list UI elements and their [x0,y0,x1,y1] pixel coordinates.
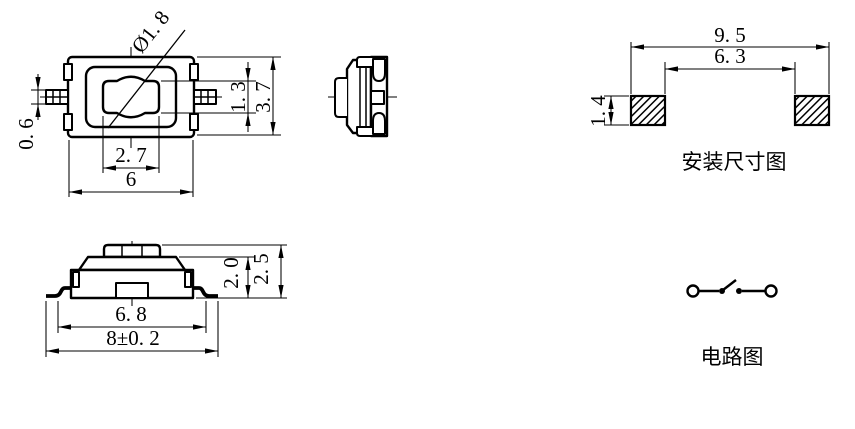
side-lead-lobe-bottom [373,113,385,134]
side-view [328,57,397,136]
solder-pad-left [631,96,665,125]
dim-label-body-height: 3. 7 [251,81,275,113]
dim-label-lead-height: 0. 6 [14,118,38,150]
switch-lever [723,280,736,290]
circuit-view-caption: 电路图 [701,345,764,369]
mounting-view-caption: 安装尺寸图 [682,150,787,174]
right-lead [194,90,216,104]
front-bottom-boss [116,283,148,298]
contact-dot-right [736,288,742,294]
front-cover [79,257,185,270]
body-tab [190,64,198,80]
side-lead-lobe-top [373,59,385,81]
solder-pad-right [795,96,829,125]
side-button-nub [335,78,347,117]
pad-hatch [795,96,829,125]
front-view: 6. 8 8±0. 2 2. 0 2. 5 [46,241,287,357]
dim-label-button-height: 1. 3 [226,81,250,113]
dim-label-button-width: 2. 7 [115,143,147,167]
front-side-tab [185,272,191,287]
body-tab [64,114,72,130]
circuit-diagram-view: 电路图 [688,280,777,369]
dim-pad-span-inner: 6. 3 [665,44,795,94]
drawing-svg: Ø1. 8 0. 6 1. 3 3. 7 [0,0,855,429]
push-button [103,77,159,118]
left-lead [46,90,68,104]
dim-label-front-total-height: 2. 5 [249,253,273,285]
dim-label-pad-span-inner: 6. 3 [714,44,746,68]
dim-label-pad-height: 1. 4 [586,95,610,127]
technical-drawing-page: Ø1. 8 0. 6 1. 3 3. 7 [0,0,855,429]
dim-label-front-body-width: 6. 8 [115,302,147,326]
front-side-tab [73,272,79,287]
gullwing-lead-left [46,288,71,296]
dim-label-diameter: Ø1. 8 [127,6,175,58]
terminal-circle-right [766,286,777,297]
dim-label-front-body-height: 2. 0 [219,257,243,289]
side-body [347,60,371,133]
top-view: Ø1. 8 0. 6 1. 3 3. 7 [14,6,281,197]
dim-pad-height: 1. 4 [586,95,629,127]
body-tab [190,114,198,130]
gullwing-lead-right [193,288,218,296]
dim-label-front-total-width: 8±0. 2 [106,326,160,350]
pad-hatch [631,96,665,125]
body-tab [64,64,72,80]
terminal-circle-left [688,286,699,297]
front-button [104,245,160,257]
mounting-dimensions-view: 9. 5 6. 3 1. 4 安装尺寸图 [586,23,829,174]
side-lead-middle [371,91,384,104]
dim-label-body-width: 6 [126,167,137,191]
dim-lead-height: 0. 6 [14,74,47,150]
